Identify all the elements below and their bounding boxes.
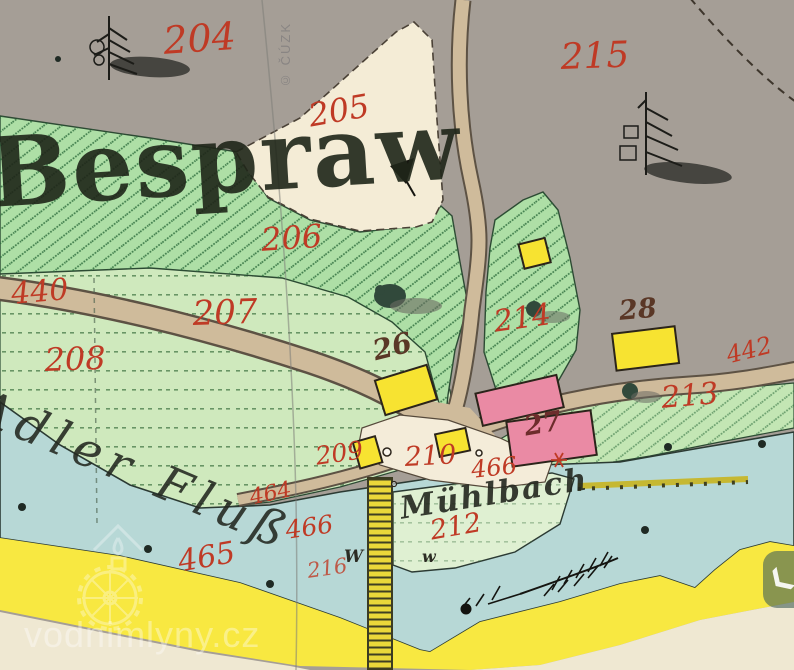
map-viewport: Bespraw Adler Fluß Mühlbach 204 215 205 … xyxy=(0,0,794,670)
chevron-left-icon: ❮ xyxy=(762,561,794,598)
wooden-building-28 xyxy=(612,326,679,370)
wooden-building-small-214 xyxy=(518,238,550,269)
cadastral-map xyxy=(0,0,794,670)
weir-footbridge xyxy=(368,478,392,670)
nav-collapse-button[interactable]: ❮ xyxy=(763,551,794,608)
wooden-building-courtyard xyxy=(435,428,470,457)
